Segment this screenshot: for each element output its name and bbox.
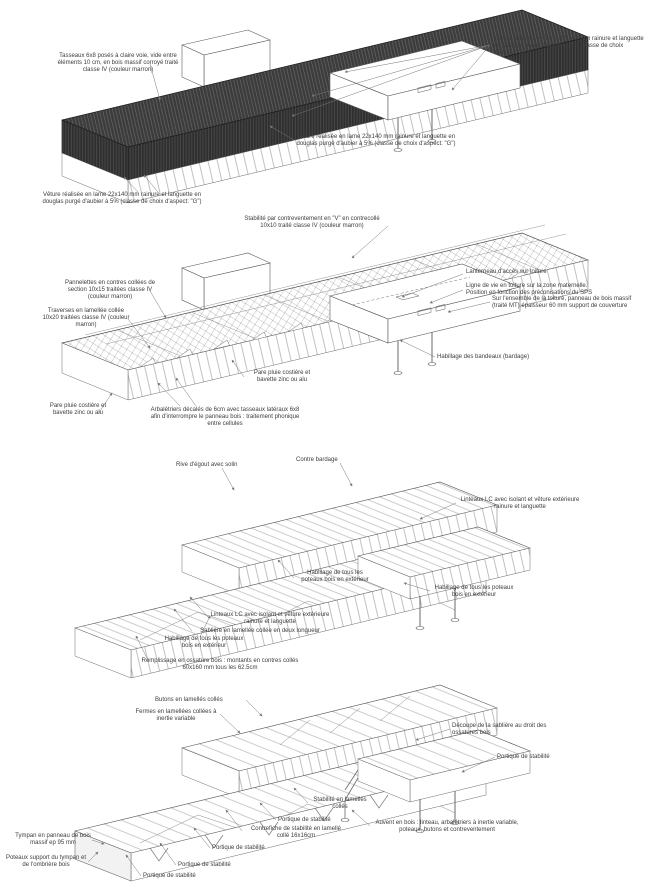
annotation-contre-bardage: Contre bardage xyxy=(296,457,356,464)
annotation-habillage-poteaux-1: Habillage de tous les poteaux bois en ex… xyxy=(296,570,374,584)
annotation-pare-pluie-droite: Pare pluie costière et bavette zinc ou a… xyxy=(246,370,318,384)
annotation-linteaux-droite: Linteaux LC avec isolant et vêture extér… xyxy=(458,497,582,511)
drawing-sheet: Tasseaux 6x8 posés à claire voie, vide e… xyxy=(0,0,650,888)
annotation-tympan: Tympan en panneau de bois massif ep 95 m… xyxy=(12,833,94,847)
annotation-remplissage: Remplissage en ossature bois : montants … xyxy=(140,658,300,672)
annotation-portique-2: Portique de stabilité xyxy=(278,817,358,824)
annotation-butons: Butons en lamellés collés xyxy=(155,697,251,704)
annotation-decoupe-sabliere: Découpe de la sablière au droit des ossa… xyxy=(452,723,554,737)
annotation-veture-1: Vêture réalisée en lame 22x140 mm rainur… xyxy=(494,36,644,57)
annotation-habillage-poteaux-2: Habillage de tous les poteaux bois en ex… xyxy=(432,585,516,599)
annotation-rive-egout: Rive d'égout avec solin xyxy=(176,462,262,469)
annotation-bandeaux: Habillage des bandeaux (bardage) xyxy=(437,354,557,361)
annotation-lanterneau: Lanterneau d'accès sur toiture xyxy=(466,269,576,276)
annotation-fermes: Fermes en lamellées collées à inertie va… xyxy=(130,709,222,723)
axon-view-2-roof-structure xyxy=(62,225,588,400)
annotation-portique-3: Portique de stabilité xyxy=(212,845,292,852)
annotation-portique-4: Portique de stabilité xyxy=(178,862,258,869)
annotation-traverses: Traverses en lamellée collée 10x20 trait… xyxy=(40,308,132,329)
annotation-stabilite-lc: Stabilité en lamellés collés xyxy=(310,797,370,811)
annotation-poteaux-tympan: Poteaux support du tympan et de l'ombriè… xyxy=(2,855,90,869)
annotation-pare-pluie-gauche: Pare pluie costière et bavette zinc ou a… xyxy=(40,403,116,417)
annotation-auvent: Auvent en bois : linteau, arbalétriers à… xyxy=(372,820,522,834)
annotation-veture-2: Vêture réalisée en lame 22x140 mm rainur… xyxy=(296,134,456,148)
annotation-linteaux-gauche: Linteaux LC avec isolant et vêture extér… xyxy=(210,612,330,626)
annotation-veture-3: Vêture réalisée en lame 22x140 mm rainur… xyxy=(42,192,202,206)
annotation-habillage-poteaux-3: Habillage de tous les poteaux bois en ex… xyxy=(160,636,248,650)
annotation-tasseaux: Tasseaux 6x8 posés à claire voie, vide e… xyxy=(52,53,184,74)
annotation-contrefiche: Contrefiche de stabilité en lamellé coll… xyxy=(244,826,348,840)
annotation-portique-1: Portique de stabilité xyxy=(497,754,577,761)
annotation-arbaletriers: Arbalétriers décalés de 6cm avec tasseau… xyxy=(150,407,300,428)
annotation-portique-5: Portique de stabilité xyxy=(143,873,223,880)
annotation-pannelettes: Pannelettes en contres collées de sectio… xyxy=(62,280,158,301)
annotation-panneau-toiture: Sur l'ensemble de la toiture, panneau de… xyxy=(492,296,644,310)
annotation-stabilite-v: Stabilité par contreventement en "V" en … xyxy=(236,216,388,230)
annotation-sabliere: Sablière en lamellée collée en deux long… xyxy=(185,628,335,635)
